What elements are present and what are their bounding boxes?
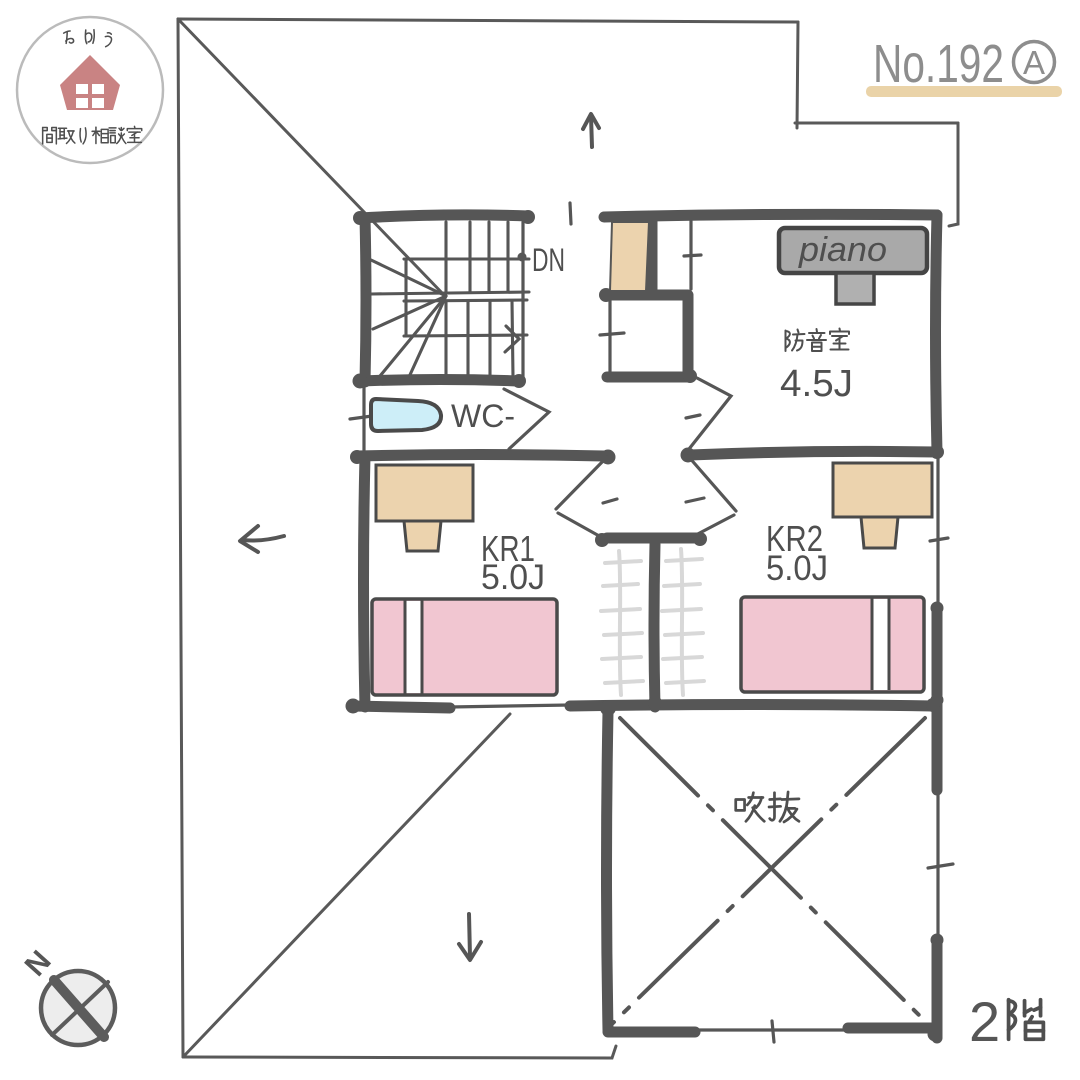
svg-text:piano: piano [798,231,887,269]
svg-text:A: A [1023,44,1045,81]
svg-text:WC-: WC- [451,398,515,434]
svg-text:5.0J: 5.0J [766,549,828,588]
svg-text:No.192: No.192 [873,34,1004,94]
svg-text:2: 2 [969,990,1000,1053]
svg-text:5.0J: 5.0J [481,558,545,597]
svg-text:4.5J: 4.5J [780,363,853,405]
svg-text:DN: DN [532,242,565,278]
